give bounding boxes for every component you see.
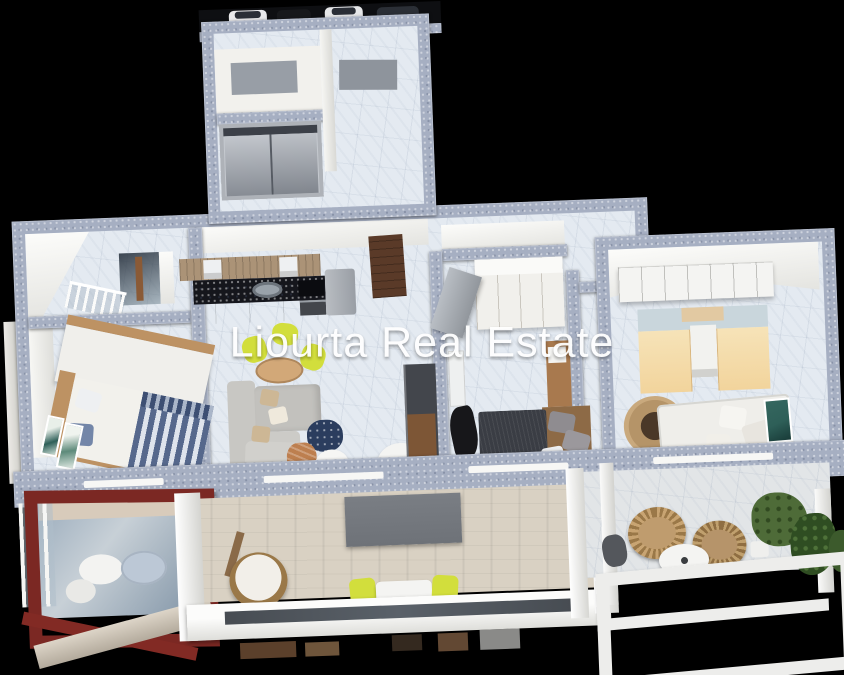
watermark-text: Liourta Real Estate: [230, 319, 615, 368]
car-windshield: [332, 7, 356, 15]
open-shelf-unit: [618, 261, 774, 302]
kitchen-shelf-box: [279, 257, 298, 278]
grey-mat: [231, 61, 298, 96]
hall-grey-rug: [339, 60, 397, 90]
oven: [300, 300, 327, 316]
window-sill: [263, 472, 383, 484]
sofa-pillow: [251, 425, 271, 443]
floor-below-fragment: [438, 632, 469, 651]
floor-below-fragment: [392, 634, 423, 651]
bathroom-partition: [159, 251, 175, 303]
elevator-door-left: [224, 135, 271, 197]
yellow-wardrobe-right: [716, 327, 770, 391]
desk-niche: [690, 325, 718, 378]
floor-below-fragment: [240, 641, 297, 659]
fridge: [325, 268, 357, 315]
elevator: [219, 121, 324, 201]
car-windshield: [235, 11, 261, 19]
entry-door: [368, 234, 406, 298]
entrance-hall: [201, 13, 437, 224]
floorplan-3d-render: Liourta Real Estate: [0, 0, 844, 675]
shower-wood-trim: [135, 257, 144, 301]
teal-art: [766, 400, 792, 442]
awning-canopy: [344, 493, 462, 547]
window-sill: [84, 478, 164, 488]
floor-below-fragment: [480, 628, 521, 650]
terrace-right: [563, 454, 844, 670]
floor-below-fragment: [305, 641, 340, 656]
unit-wood-top: [681, 306, 724, 322]
railing-glass: [225, 598, 573, 624]
storage-room-floor: [214, 46, 322, 114]
kids-desk-unit: [637, 305, 770, 394]
window-sill: [468, 462, 568, 473]
cooktop: [298, 280, 325, 297]
elevator-door-right: [271, 133, 318, 195]
balcony-center: [174, 477, 620, 669]
yellow-wardrobe-left: [638, 330, 692, 394]
table-decor: [681, 557, 688, 564]
sofa-pillow: [259, 388, 279, 407]
kitchen-shelf-box: [203, 260, 222, 280]
